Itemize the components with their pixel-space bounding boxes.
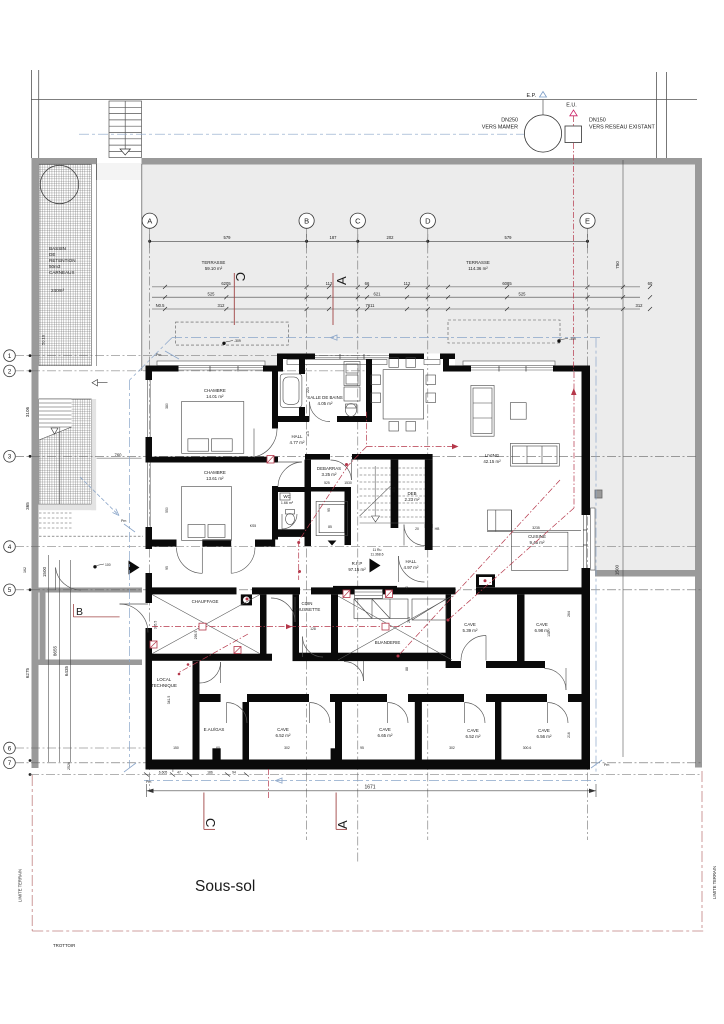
svg-text:3235: 3235 <box>532 526 540 530</box>
svg-text:11.368.6: 11.368.6 <box>371 553 384 557</box>
svg-text:CAVE: CAVE <box>277 727 289 732</box>
svg-text:R.F.P: R.F.P <box>352 561 363 566</box>
svg-text:380: 380 <box>165 403 169 409</box>
svg-text:4: 4 <box>8 544 12 551</box>
svg-text:6.65 m²: 6.65 m² <box>378 733 393 738</box>
svg-text:6205: 6205 <box>221 281 231 286</box>
svg-text:113: 113 <box>392 487 396 493</box>
svg-text:88: 88 <box>405 667 409 671</box>
svg-text:114.36 m²: 114.36 m² <box>468 266 488 271</box>
svg-text:TERRASSE: TERRASSE <box>202 260 226 265</box>
svg-text:341.5: 341.5 <box>167 696 171 705</box>
svg-text:LIMITE TERRAIN: LIMITE TERRAIN <box>712 866 717 899</box>
svg-text:47: 47 <box>177 771 181 775</box>
svg-text:6275: 6275 <box>25 667 30 678</box>
svg-text:1500: 1500 <box>615 564 620 575</box>
svg-text:CAVE: CAVE <box>467 728 479 733</box>
svg-text:7611: 7611 <box>365 303 375 308</box>
svg-text:BASSIN: BASSIN <box>49 246 66 251</box>
svg-text:202: 202 <box>387 235 395 240</box>
svg-text:RETENTION: RETENTION <box>49 258 76 263</box>
svg-text:TECHNIQUE: TECHNIQUE <box>151 683 177 688</box>
svg-text:LIVING: LIVING <box>485 453 500 458</box>
svg-text:D: D <box>425 216 431 225</box>
svg-text:DEB: DEB <box>407 491 416 496</box>
svg-text:E.P.: E.P. <box>527 93 537 99</box>
svg-text:112: 112 <box>404 281 411 286</box>
svg-text:1671: 1671 <box>364 785 375 791</box>
svg-text:TERRASSE: TERRASSE <box>466 260 490 265</box>
svg-text:DN150: DN150 <box>589 118 606 124</box>
svg-text:128: 128 <box>310 627 316 631</box>
svg-text:60: 60 <box>216 746 220 750</box>
svg-text:187: 187 <box>330 235 338 240</box>
svg-text:2526: 2526 <box>67 762 71 770</box>
svg-text:4.77 m²: 4.77 m² <box>290 440 305 445</box>
svg-text:312: 312 <box>636 303 644 308</box>
svg-text:1: 1 <box>8 353 12 360</box>
svg-text:Sous-sol: Sous-sol <box>195 878 255 895</box>
svg-text:POUSSETTE: POUSSETTE <box>294 607 321 612</box>
svg-text:20: 20 <box>415 527 419 531</box>
svg-text:95: 95 <box>165 566 169 570</box>
svg-text:112: 112 <box>326 281 333 286</box>
svg-text:6.605: 6.605 <box>159 771 168 775</box>
svg-text:6.56 m²: 6.56 m² <box>537 734 552 739</box>
svg-text:N0.5: N0.5 <box>156 303 166 308</box>
svg-text:A: A <box>147 216 152 225</box>
svg-text:CAVE: CAVE <box>464 622 476 627</box>
svg-text:264: 264 <box>567 611 571 617</box>
svg-text:60: 60 <box>648 281 653 286</box>
svg-text:2.23 m²: 2.23 m² <box>405 497 420 502</box>
svg-text:14.01 m²: 14.01 m² <box>206 394 224 399</box>
svg-text:7: 7 <box>8 760 12 767</box>
svg-text:C: C <box>203 818 218 827</box>
svg-text:A: A <box>334 276 349 285</box>
svg-text:3106: 3106 <box>25 406 30 417</box>
svg-text:59.10 m²: 59.10 m² <box>205 266 223 271</box>
svg-text:97.15 m²: 97.15 m² <box>348 567 366 572</box>
svg-text:CHAUFFAGE: CHAUFFAGE <box>192 599 219 604</box>
svg-text:5.39 m²: 5.39 m² <box>463 628 478 633</box>
svg-text:13.61 m²: 13.61 m² <box>206 476 224 481</box>
svg-text:6: 6 <box>8 745 12 752</box>
svg-text:LIMITE TERRAIN: LIMITE TERRAIN <box>18 869 23 902</box>
svg-text:CHAMBRE: CHAMBRE <box>204 470 226 475</box>
svg-text:Pm: Pm <box>604 763 609 767</box>
svg-text:186: 186 <box>207 771 213 775</box>
svg-text:CAVE: CAVE <box>538 728 550 733</box>
svg-text:CHAMBRE: CHAMBRE <box>204 388 226 393</box>
svg-text:3: 3 <box>8 454 12 461</box>
svg-text:42.15 m²: 42.15 m² <box>483 459 501 464</box>
svg-text:LOCAL: LOCAL <box>157 677 172 682</box>
svg-text:365: 365 <box>25 502 30 510</box>
svg-text:525: 525 <box>324 481 330 485</box>
svg-text:264: 264 <box>407 617 411 623</box>
svg-text:E.AU/GAS: E.AU/GAS <box>204 727 225 732</box>
svg-text:6435: 6435 <box>64 665 69 676</box>
svg-text:6.52 m²: 6.52 m² <box>466 734 481 739</box>
svg-text:95: 95 <box>360 746 364 750</box>
svg-text:6085: 6085 <box>502 281 512 286</box>
svg-text:CARNEAUX: CARNEAUX <box>49 270 75 275</box>
svg-text:2: 2 <box>8 368 12 375</box>
svg-text:4.05 m²: 4.05 m² <box>318 401 333 406</box>
svg-text:CUISINE: CUISINE <box>528 534 546 539</box>
svg-text:C: C <box>355 216 361 225</box>
svg-text:Pm: Pm <box>121 519 126 523</box>
svg-text:B: B <box>76 606 83 618</box>
svg-text:302: 302 <box>449 746 455 750</box>
svg-text:E.U.: E.U. <box>566 103 576 109</box>
svg-text:5: 5 <box>8 587 12 594</box>
svg-text:DEBARRAS: DEBARRAS <box>317 466 341 471</box>
svg-text:11 Ru: 11 Ru <box>373 548 382 552</box>
svg-text:-309: -309 <box>234 339 241 343</box>
svg-text:760: 760 <box>115 453 123 458</box>
svg-text:223: 223 <box>306 387 310 393</box>
svg-text:A: A <box>335 820 350 829</box>
svg-text:300.6: 300.6 <box>523 746 532 750</box>
svg-text:4.97 m²: 4.97 m² <box>404 565 419 570</box>
svg-text:1.66 m²: 1.66 m² <box>281 501 294 505</box>
svg-text:BUANDERIE: BUANDERIE <box>375 640 401 645</box>
svg-text:-309: -309 <box>569 337 576 341</box>
svg-text:550: 550 <box>165 507 169 513</box>
svg-text:85: 85 <box>328 525 332 529</box>
svg-text:CAVE: CAVE <box>536 622 548 627</box>
svg-text:WC: WC <box>283 494 290 499</box>
svg-text:DE: DE <box>49 252 55 257</box>
svg-text:162: 162 <box>23 567 27 573</box>
svg-text:VERS MAMER: VERS MAMER <box>482 125 518 131</box>
svg-text:KS5: KS5 <box>250 524 257 528</box>
svg-text:579: 579 <box>505 235 513 240</box>
svg-text:Pm: Pm <box>146 780 151 784</box>
svg-text:B: B <box>304 216 309 225</box>
svg-text:DN250: DN250 <box>501 118 518 124</box>
svg-text:90: 90 <box>405 586 409 590</box>
svg-text:CAVE: CAVE <box>379 727 391 732</box>
svg-text:6.52 m²: 6.52 m² <box>276 733 291 738</box>
svg-text:50m3: 50m3 <box>49 264 61 269</box>
svg-text:621: 621 <box>374 292 382 297</box>
svg-text:1500: 1500 <box>42 566 47 577</box>
svg-text:SALLE DE BAINS: SALLE DE BAINS <box>307 395 342 400</box>
svg-text:94: 94 <box>232 771 236 775</box>
svg-text:525: 525 <box>208 292 216 297</box>
svg-text:3.25 m²: 3.25 m² <box>322 472 337 477</box>
svg-text:C: C <box>233 272 248 281</box>
svg-text:E: E <box>585 216 590 225</box>
svg-text:HALL: HALL <box>406 559 418 564</box>
svg-text:66: 66 <box>365 281 370 286</box>
svg-text:150: 150 <box>173 746 179 750</box>
svg-text:240m³: 240m³ <box>51 288 64 293</box>
svg-text:VERS RESEAU EXISTANT: VERS RESEAU EXISTANT <box>589 125 656 131</box>
svg-text:8655: 8655 <box>53 645 58 656</box>
svg-text:216: 216 <box>567 732 571 738</box>
svg-text:138: 138 <box>547 631 551 637</box>
svg-text:HALL: HALL <box>292 434 304 439</box>
svg-text:Pm: Pm <box>156 353 161 357</box>
svg-text:TROTTOIR: TROTTOIR <box>53 943 75 948</box>
svg-text:113: 113 <box>306 431 310 437</box>
svg-text:COIN: COIN <box>302 601 313 606</box>
svg-text:335.5: 335.5 <box>154 621 158 630</box>
svg-text:50 10: 50 10 <box>41 334 46 345</box>
svg-text:525: 525 <box>519 292 527 297</box>
svg-text:579: 579 <box>224 235 232 240</box>
svg-text:750: 750 <box>615 261 620 269</box>
svg-text:312: 312 <box>218 303 226 308</box>
svg-text:302: 302 <box>284 746 290 750</box>
svg-text:HB: HB <box>435 527 440 531</box>
svg-text:295.5: 295.5 <box>194 631 198 640</box>
svg-text:100: 100 <box>105 563 111 567</box>
svg-text:95: 95 <box>327 508 331 512</box>
svg-text:1530: 1530 <box>344 481 352 485</box>
